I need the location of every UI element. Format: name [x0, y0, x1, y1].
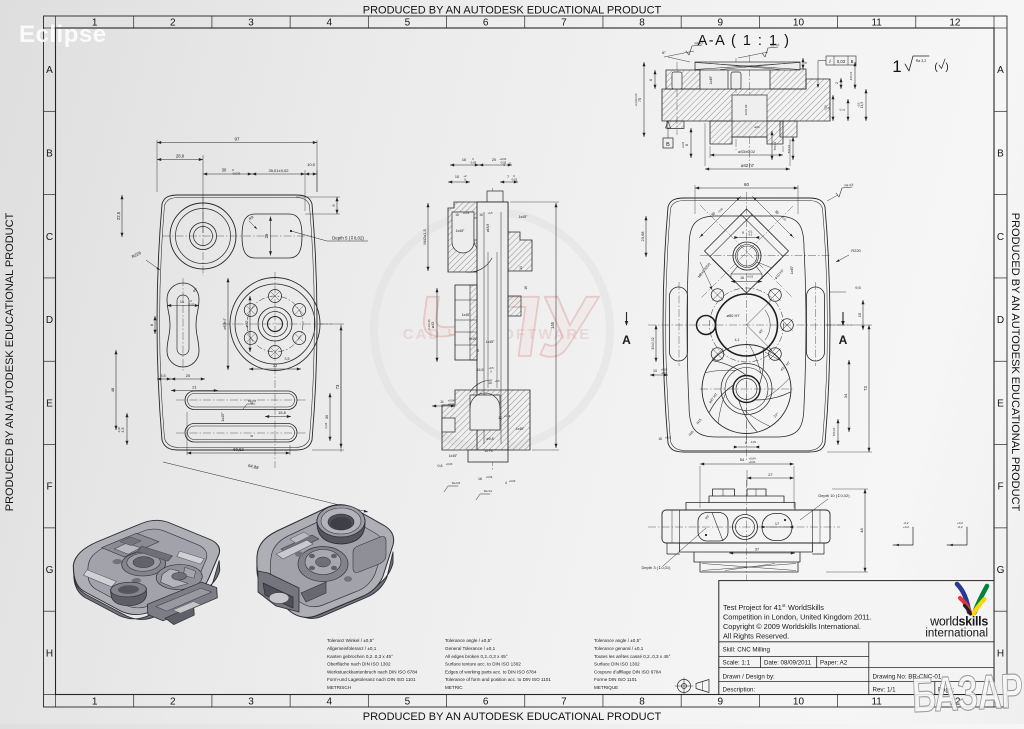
svg-text:Ra 0,8: Ra 0,8	[844, 183, 854, 188]
svg-text:+0,02/-0,05: +0,02/-0,05	[635, 93, 638, 106]
svg-text:1x45°: 1x45°	[456, 229, 465, 233]
svg-text:PRODUCED BY AN AUTODESK EDUCAT: PRODUCED BY AN AUTODESK EDUCATIONAL PROD…	[363, 711, 662, 723]
svg-text:9,5: 9,5	[855, 285, 861, 290]
svg-text:C: C	[46, 232, 53, 243]
svg-text:БАЗАР: БАЗАР	[911, 663, 1024, 723]
svg-text:11: 11	[440, 400, 444, 404]
svg-text:A: A	[46, 65, 53, 76]
svg-text:48: 48	[859, 528, 864, 533]
svg-text:M42x1,5: M42x1,5	[422, 229, 427, 245]
svg-text:8: 8	[639, 18, 645, 29]
svg-text:B: B	[851, 59, 854, 64]
svg-text:37: 37	[755, 547, 760, 552]
svg-text:4±0,01: 4±0,01	[849, 71, 853, 80]
svg-text:): )	[945, 62, 948, 73]
svg-text:All Rights Reserved.: All Rights Reserved.	[723, 632, 789, 641]
svg-text:4,5: 4,5	[121, 428, 125, 433]
svg-text:+0,02: +0,02	[665, 437, 672, 440]
svg-text:Form-und Lagetoleranz nach DIN: Form-und Lagetoleranz nach DIN ISO 1101	[327, 677, 416, 682]
svg-text:Forme DIN ISO 1101: Forme DIN ISO 1101	[594, 677, 637, 682]
svg-text:1x45°: 1x45°	[516, 427, 525, 431]
svg-text:0: 0	[509, 162, 511, 165]
svg-text:H: H	[46, 648, 53, 659]
svg-text:145: 145	[550, 321, 555, 329]
svg-text:ø33±0,02: ø33±0,02	[738, 149, 756, 154]
svg-text:ø10 H7: ø10 H7	[774, 269, 785, 280]
svg-text:F: F	[46, 482, 52, 493]
svg-text:-0,2: -0,2	[957, 525, 963, 529]
svg-text:12: 12	[498, 416, 502, 420]
svg-text:8: 8	[827, 107, 831, 109]
svg-text:12±0,02: 12±0,02	[744, 104, 748, 115]
svg-text:Depth 3 (↧0,01): Depth 3 (↧0,01)	[642, 565, 672, 570]
svg-text:30: 30	[222, 168, 227, 173]
svg-text:A: A	[997, 65, 1004, 76]
svg-text:26: 26	[264, 233, 269, 238]
svg-text:48: 48	[110, 387, 115, 392]
svg-text:97: 97	[235, 137, 240, 142]
svg-text:METRIC: METRIC	[445, 685, 463, 690]
svg-text:Date: 08/09/2011: Date: 08/09/2011	[764, 660, 812, 667]
svg-text:1: 1	[892, 57, 901, 76]
svg-text:⫽: ⫽	[828, 59, 831, 64]
svg-text:15,8: 15,8	[278, 410, 286, 415]
svg-text:+0,01: +0,01	[780, 215, 788, 223]
svg-text:+0,02: +0,02	[682, 141, 685, 148]
svg-text:+0,04: +0,04	[486, 475, 493, 479]
svg-text:8: 8	[250, 435, 254, 437]
svg-text:A: A	[839, 333, 848, 347]
svg-text:Edges of working parts acc. to: Edges of working parts acc. to DIN ISO 6…	[445, 669, 537, 674]
svg-text:M8x1,5(5x): M8x1,5(5x)	[697, 262, 711, 279]
svg-text:R220: R220	[851, 248, 861, 253]
svg-text:Competition in London, United: Competition in London, United Kingdom 20…	[723, 613, 872, 622]
svg-text:10: 10	[653, 369, 657, 373]
svg-text:1: 1	[842, 109, 846, 111]
svg-text:ø50 H7: ø50 H7	[726, 313, 740, 318]
svg-text:73: 73	[335, 384, 340, 389]
svg-text:60,52: 60,52	[233, 447, 244, 452]
svg-text:Ra 3,2: Ra 3,2	[916, 59, 927, 63]
svg-text:ø22: ø22	[244, 320, 249, 328]
svg-text:18: 18	[524, 286, 528, 290]
svg-text:Oberfläche nach DIN ISO 1302: Oberfläche nach DIN ISO 1302	[327, 662, 391, 667]
svg-text:Rev: 1/1: Rev: 1/1	[873, 687, 897, 694]
svg-text:Tolerance angle / ±0,5°: Tolerance angle / ±0,5°	[445, 638, 492, 643]
svg-text:60: 60	[744, 182, 749, 187]
svg-text:54: 54	[740, 457, 745, 462]
svg-text:D: D	[46, 315, 53, 326]
svg-text:-0,04: -0,04	[324, 422, 328, 429]
svg-text:7: 7	[561, 697, 567, 708]
svg-text:1x45°: 1x45°	[790, 265, 794, 274]
svg-text:9: 9	[331, 204, 336, 207]
svg-text:2: 2	[170, 697, 176, 708]
svg-text:ø42 h7: ø42 h7	[741, 163, 755, 168]
svg-text:10: 10	[793, 18, 805, 29]
svg-text:-0,1/-0,25: -0,1/-0,25	[427, 319, 431, 331]
svg-text:30: 30	[324, 414, 329, 419]
svg-text:R45: R45	[688, 430, 695, 437]
svg-text:9: 9	[717, 697, 723, 708]
svg-text:9: 9	[804, 62, 808, 64]
svg-text:30±0,02: 30±0,02	[651, 337, 655, 349]
svg-text:R8: R8	[704, 514, 710, 520]
svg-text:2: 2	[835, 82, 839, 84]
svg-text:11: 11	[871, 697, 882, 708]
svg-text:Depth 5 (↧0,02): Depth 5 (↧0,02)	[332, 236, 364, 241]
svg-text:1x45°: 1x45°	[709, 75, 713, 84]
svg-text:21: 21	[192, 385, 197, 390]
svg-text:F: F	[997, 482, 1003, 493]
svg-text:G: G	[46, 565, 54, 576]
svg-text:+0,03: +0,03	[747, 276, 754, 279]
svg-text:9: 9	[717, 18, 723, 29]
svg-text:45°: 45°	[758, 328, 765, 335]
svg-text:E: E	[46, 398, 53, 409]
svg-text:Tolerance angle / ±0,5°: Tolerance angle / ±0,5°	[594, 638, 641, 643]
svg-text:10: 10	[793, 697, 805, 708]
svg-text:+0,2: +0,2	[903, 525, 909, 529]
svg-text:1x45°: 1x45°	[221, 412, 225, 422]
svg-text:G: G	[997, 565, 1005, 576]
svg-text:16: 16	[478, 477, 482, 481]
svg-text:17: 17	[775, 522, 779, 526]
svg-text:1x45°: 1x45°	[469, 337, 478, 341]
svg-text:9: 9	[742, 231, 744, 235]
svg-text:R9: R9	[248, 215, 254, 221]
svg-text:+0,5: +0,5	[488, 212, 494, 215]
svg-text:10 H7: 10 H7	[484, 449, 494, 453]
svg-text:30: 30	[774, 209, 780, 215]
svg-text:6: 6	[483, 18, 489, 29]
svg-text:1x45°: 1x45°	[449, 454, 458, 458]
svg-text:Coupure d'affilage DIN ISO 678: Coupure d'affilage DIN ISO 6784	[594, 669, 661, 674]
svg-text:18: 18	[658, 437, 662, 441]
svg-text:1x45°: 1x45°	[486, 340, 495, 344]
svg-text:-0,3: -0,3	[748, 234, 753, 237]
svg-text:Ra 0,8: Ra 0,8	[452, 481, 461, 485]
svg-text:WorldSkills: WorldSkills	[788, 603, 824, 612]
svg-text:METRISCH: METRISCH	[327, 685, 351, 690]
svg-text:4: 4	[326, 697, 332, 708]
svg-text:Scale: 1:1: Scale: 1:1	[723, 660, 751, 667]
svg-text:ø53h7: ø53h7	[222, 318, 227, 330]
svg-text:R226: R226	[131, 250, 143, 259]
svg-text:D: D	[997, 315, 1004, 326]
svg-text:-0,025: -0,025	[232, 172, 241, 176]
svg-text:Ra 0,8: Ra 0,8	[248, 399, 257, 403]
svg-text:B: B	[997, 148, 1004, 159]
svg-text:16,5: 16,5	[477, 368, 484, 372]
svg-text:15: 15	[479, 213, 483, 217]
svg-text:-0,03: -0,03	[750, 440, 756, 444]
svg-text:14,5: 14,5	[860, 102, 864, 108]
svg-text:+0,03: +0,03	[509, 479, 516, 483]
svg-text:8: 8	[150, 324, 154, 326]
svg-text:6: 6	[483, 697, 489, 708]
svg-text:C: C	[997, 232, 1004, 243]
svg-text:ø43: ø43	[431, 322, 435, 328]
svg-text:-0,01: -0,01	[661, 371, 667, 375]
svg-text:PRODUCED BY AN AUTODESK EDUCAT: PRODUCED BY AN AUTODESK EDUCATIONAL PROD…	[363, 5, 662, 17]
svg-text:METRIQUE: METRIQUE	[594, 685, 618, 690]
svg-text:-0,02: -0,02	[717, 206, 724, 213]
svg-text:20: 20	[186, 373, 191, 378]
svg-text:Test Project for 41: Test Project for 41	[723, 603, 782, 612]
svg-text:3: 3	[248, 18, 254, 29]
svg-text:27°: 27°	[773, 412, 780, 419]
svg-text:ø24: ø24	[754, 125, 760, 129]
svg-text:15: 15	[857, 312, 862, 317]
svg-text:8: 8	[639, 697, 645, 708]
svg-text:2: 2	[170, 18, 176, 29]
svg-text:worldskills: worldskills	[929, 615, 988, 629]
svg-text:-0,05: -0,05	[117, 426, 121, 432]
svg-text:Surface texture acc. to DIN IS: Surface texture acc. to DIN ISO 1302	[445, 662, 521, 667]
svg-text:7: 7	[561, 18, 567, 29]
svg-text:Skill: CNC Milling: Skill: CNC Milling	[723, 647, 771, 654]
svg-text:3,5: 3,5	[285, 357, 290, 361]
svg-text:73: 73	[863, 386, 868, 391]
svg-text:ø12 H7: ø12 H7	[780, 361, 791, 372]
svg-text:(: (	[934, 62, 938, 73]
svg-text:Description:: Description:	[723, 687, 756, 694]
svg-text:Toutes les arêtes cassé 0,2..0: Toutes les arêtes cassé 0,2..0,3 x 45°	[594, 654, 671, 659]
svg-text:PRODUCED BY AN AUTODESK EDUCAT: PRODUCED BY AN AUTODESK EDUCATIONAL PROD…	[1009, 213, 1021, 512]
svg-text:18: 18	[740, 276, 744, 280]
svg-text:-0,03: -0,03	[825, 105, 828, 111]
svg-text:Eclipse: Eclipse	[19, 21, 107, 48]
svg-text:64,88: 64,88	[248, 463, 260, 470]
svg-text:international: international	[925, 628, 988, 640]
svg-text:Depth 10 (↧0,02): Depth 10 (↧0,02)	[818, 493, 850, 498]
svg-text:-0,03: -0,03	[470, 161, 477, 165]
svg-text:5±0,02: 5±0,02	[832, 427, 836, 436]
svg-text:10: 10	[488, 381, 492, 385]
svg-text:-0,02: -0,02	[511, 178, 518, 182]
svg-text:+0,01: +0,01	[748, 460, 756, 464]
svg-text:10: 10	[455, 175, 459, 179]
svg-text:+0,04: +0,04	[448, 399, 455, 403]
svg-text:14: 14	[519, 266, 523, 270]
svg-text:23,68: 23,68	[640, 231, 645, 242]
svg-text:6: 6	[649, 79, 653, 81]
svg-text:7: 7	[507, 175, 509, 179]
svg-text:22,5: 22,5	[116, 211, 121, 220]
svg-text:1x45°: 1x45°	[519, 215, 528, 219]
svg-text:Paper: A2: Paper: A2	[820, 660, 848, 667]
svg-text:4: 4	[326, 18, 332, 29]
svg-text:32: 32	[273, 363, 278, 368]
svg-text:1: 1	[92, 697, 98, 708]
svg-text:Copyright © 2009 Worldskills I: Copyright © 2009 Worldskills Internation…	[723, 622, 861, 631]
svg-text:PRODUCED BY AN AUTODESK EDUCAT: PRODUCED BY AN AUTODESK EDUCATIONAL PROD…	[4, 212, 16, 511]
svg-text:Allgemeinfoleranz / ±0,1: Allgemeinfoleranz / ±0,1	[327, 646, 377, 651]
svg-text:Tolerance genaral / ±0,1: Tolerance genaral / ±0,1	[594, 646, 644, 651]
svg-text:ø47 H7: ø47 H7	[708, 393, 718, 405]
svg-text:4: 4	[503, 163, 505, 167]
svg-text:E: E	[997, 398, 1004, 409]
svg-text:5: 5	[405, 18, 411, 29]
svg-text:20: 20	[492, 158, 496, 162]
svg-text:Werkstueckkantenbruch nach DIN: Werkstueckkantenbruch nach DIN ISO 6784	[327, 669, 418, 674]
svg-text:B: B	[46, 148, 53, 159]
svg-text:35,01±0,02: 35,01±0,02	[269, 168, 290, 173]
svg-text:+0,5: +0,5	[488, 366, 494, 370]
svg-text:Kanten gebrochen 0,2..0,3 x 45: Kanten gebrochen 0,2..0,3 x 45°	[327, 654, 393, 659]
svg-text:27: 27	[768, 472, 773, 477]
svg-text:+0,03: +0,03	[446, 462, 453, 466]
svg-text:8,5: 8,5	[160, 374, 165, 378]
svg-text:3: 3	[248, 697, 254, 708]
svg-text:A: A	[622, 333, 631, 347]
svg-text:+0,02: +0,02	[661, 368, 668, 372]
svg-text:8: 8	[745, 441, 747, 445]
svg-text:Drawn / Design by:: Drawn / Design by:	[723, 674, 776, 681]
svg-text:12: 12	[949, 18, 961, 29]
svg-text:ø9,8: ø9,8	[486, 437, 493, 441]
svg-text:ø18,8: ø18,8	[486, 224, 490, 232]
svg-text:4: 4	[505, 481, 507, 485]
svg-text:5: 5	[405, 697, 411, 708]
svg-text:+2: +2	[840, 108, 843, 111]
svg-text:8: 8	[685, 144, 689, 146]
svg-text:0,6: 0,6	[438, 464, 443, 468]
svg-text:6°: 6°	[662, 50, 666, 55]
svg-text:+0,03: +0,03	[463, 212, 470, 215]
svg-text:5±0,01: 5±0,01	[787, 144, 791, 153]
svg-text:R15: R15	[696, 418, 703, 425]
svg-text:+0,5: +0,5	[495, 380, 501, 383]
svg-text:-0,03: -0,03	[188, 303, 195, 307]
svg-text:+0,02: +0,02	[504, 415, 511, 418]
svg-text:28,9: 28,9	[176, 154, 185, 159]
svg-text:General Tolerance / ±0,1: General Tolerance / ±0,1	[445, 646, 496, 651]
svg-text:1x45°: 1x45°	[462, 313, 471, 317]
svg-text:Surface DIN ISO 1302: Surface DIN ISO 1302	[594, 662, 640, 667]
svg-text:10: 10	[180, 300, 184, 304]
svg-text:10,5: 10,5	[307, 162, 316, 167]
svg-text:+0,5: +0,5	[858, 102, 861, 107]
svg-text:16: 16	[462, 158, 466, 162]
svg-text:H: H	[997, 648, 1004, 659]
svg-text:Ra 3,2: Ra 3,2	[484, 489, 493, 493]
svg-text:+0,01: +0,01	[448, 402, 455, 406]
svg-text:11: 11	[871, 18, 882, 29]
svg-text:34: 34	[843, 393, 848, 398]
svg-text:4,1: 4,1	[735, 338, 740, 342]
svg-text:5±0,01: 5±0,01	[773, 141, 777, 150]
svg-text:All edges broken 0,2..0,3 x 45: All edges broken 0,2..0,3 x 45°	[445, 654, 508, 659]
svg-text:0,03: 0,03	[837, 59, 846, 64]
svg-text:Tolerance of form and position: Tolerance of form and position acc. to D…	[445, 677, 551, 682]
svg-text:75: 75	[638, 98, 642, 102]
svg-text:B: B	[666, 142, 670, 148]
svg-text:Toleranz Winkel / ±0,5°: Toleranz Winkel / ±0,5°	[327, 638, 374, 643]
svg-text:15: 15	[455, 213, 459, 217]
